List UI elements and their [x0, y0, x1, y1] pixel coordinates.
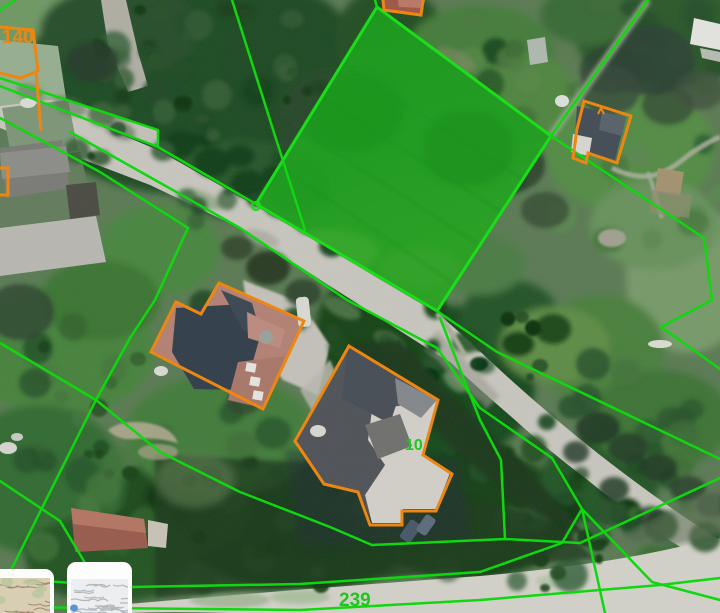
svg-text:10: 10 [405, 437, 423, 454]
svg-text:239: 239 [339, 590, 371, 611]
svg-text:140: 140 [2, 27, 34, 48]
